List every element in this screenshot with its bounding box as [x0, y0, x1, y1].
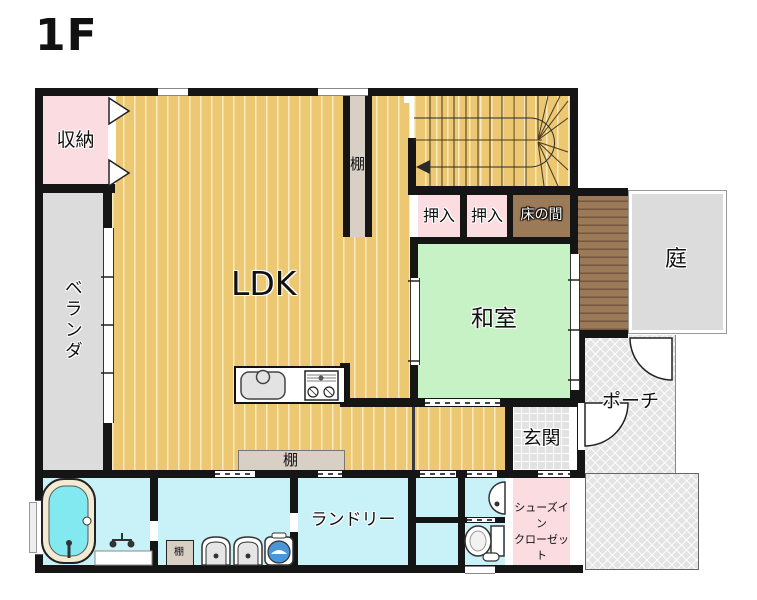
- sliding-door: [425, 399, 500, 406]
- wall: [340, 363, 350, 403]
- wall: [408, 186, 578, 195]
- engawa-deck: [578, 196, 628, 330]
- hallway-floor: [340, 407, 505, 470]
- label-veranda: ベランダ: [62, 278, 82, 362]
- label-oshiire-right: 押入: [467, 195, 507, 237]
- sliding-door: [467, 471, 497, 477]
- label-shelf-tall: 棚: [350, 156, 365, 173]
- door-opening: [290, 513, 298, 532]
- window: [318, 88, 368, 96]
- wall: [35, 470, 583, 478]
- wall: [570, 88, 578, 254]
- porch-terrace: [585, 473, 699, 570]
- label-garden: 庭: [665, 248, 687, 272]
- window-sill: [29, 502, 37, 553]
- window: [465, 566, 495, 574]
- label-porch: ポーチ: [602, 391, 659, 412]
- sliding-door: [318, 471, 342, 477]
- label-tokonoma: 床の間: [513, 195, 570, 237]
- wall: [103, 423, 112, 470]
- wall: [343, 96, 350, 237]
- room-toilet: [465, 523, 505, 565]
- wall: [408, 478, 416, 573]
- label-ldk: LDK: [231, 266, 296, 302]
- wall: [408, 138, 416, 195]
- wall: [460, 195, 467, 237]
- storage-door-opening: [108, 96, 116, 184]
- sliding-door: [420, 471, 456, 477]
- label-storage: 収納: [43, 96, 108, 184]
- label-laundry: ランドリー: [298, 500, 408, 540]
- label-washitsu: 和室: [418, 290, 570, 350]
- wall: [35, 565, 583, 573]
- wall: [412, 407, 415, 470]
- label-shoe-closet: シューズイン クローゼット: [513, 500, 570, 564]
- wall: [35, 88, 578, 96]
- wall: [365, 96, 372, 237]
- wall: [458, 478, 465, 565]
- door-opening: [150, 521, 158, 541]
- wall: [505, 398, 513, 478]
- wall: [578, 330, 628, 338]
- floor-title: 1F: [35, 12, 98, 60]
- door: [467, 518, 495, 522]
- wall: [578, 188, 628, 196]
- wall: [35, 184, 115, 193]
- room-powder: [465, 478, 505, 517]
- label-oshiire-left: 押入: [418, 195, 460, 237]
- front-door-opening: [578, 403, 585, 450]
- washitsu-window: [570, 254, 580, 390]
- veranda-sliding-window: [103, 228, 114, 423]
- label-shelf-washroom: 棚: [166, 541, 192, 564]
- wall: [103, 193, 112, 228]
- stairs-floor: [414, 96, 570, 186]
- label-shelf-bottom: 棚: [238, 450, 343, 470]
- room-bathroom: [43, 478, 150, 565]
- label-genkan: 玄関: [513, 418, 570, 458]
- wall: [410, 237, 578, 244]
- floor-plan-1f: 1F: [0, 0, 757, 600]
- window: [158, 88, 188, 96]
- stairs-opening: [404, 96, 414, 103]
- sliding-door: [538, 471, 570, 477]
- sliding-door: [215, 471, 255, 477]
